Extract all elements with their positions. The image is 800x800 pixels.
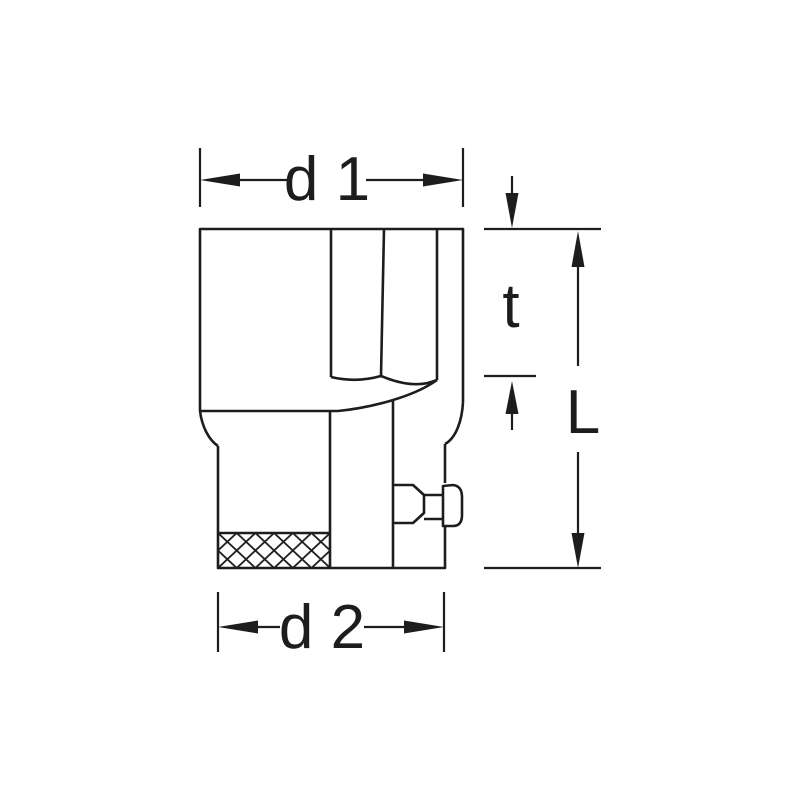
boss-button (443, 485, 462, 526)
L-arrow-down (572, 533, 585, 568)
dimension-d2: d 2 (218, 592, 444, 662)
waist-curve-left (200, 411, 218, 446)
t-arrow-down (506, 193, 519, 228)
boss-chamfered-block (393, 485, 424, 523)
hex-inner-edge-2 (381, 229, 384, 376)
L-arrow-up (572, 231, 585, 267)
knurl-crosshatch (218, 533, 330, 568)
L-label: L (566, 378, 600, 447)
t-arrow-up (506, 381, 519, 414)
d1-label: d 1 (284, 145, 370, 214)
diagram-canvas: d 1 d 2 t L (0, 0, 800, 800)
socket-technical-drawing: d 1 d 2 t L (0, 0, 800, 800)
t-label: t (502, 272, 519, 341)
d2-arrow-left (218, 621, 258, 634)
d2-arrow-right (404, 621, 444, 634)
recess-bottom-curve-1 (331, 376, 381, 380)
waist-curve-right (445, 402, 463, 444)
recess-bottom-curve-2 (381, 376, 437, 384)
socket-body (200, 229, 463, 568)
knurl-band (218, 533, 330, 568)
d1-arrow-left (200, 174, 240, 187)
d1-arrow-right (423, 174, 463, 187)
d2-label: d 2 (279, 593, 365, 662)
dimension-d1: d 1 (200, 145, 463, 214)
drive-detent-boss (393, 485, 462, 526)
